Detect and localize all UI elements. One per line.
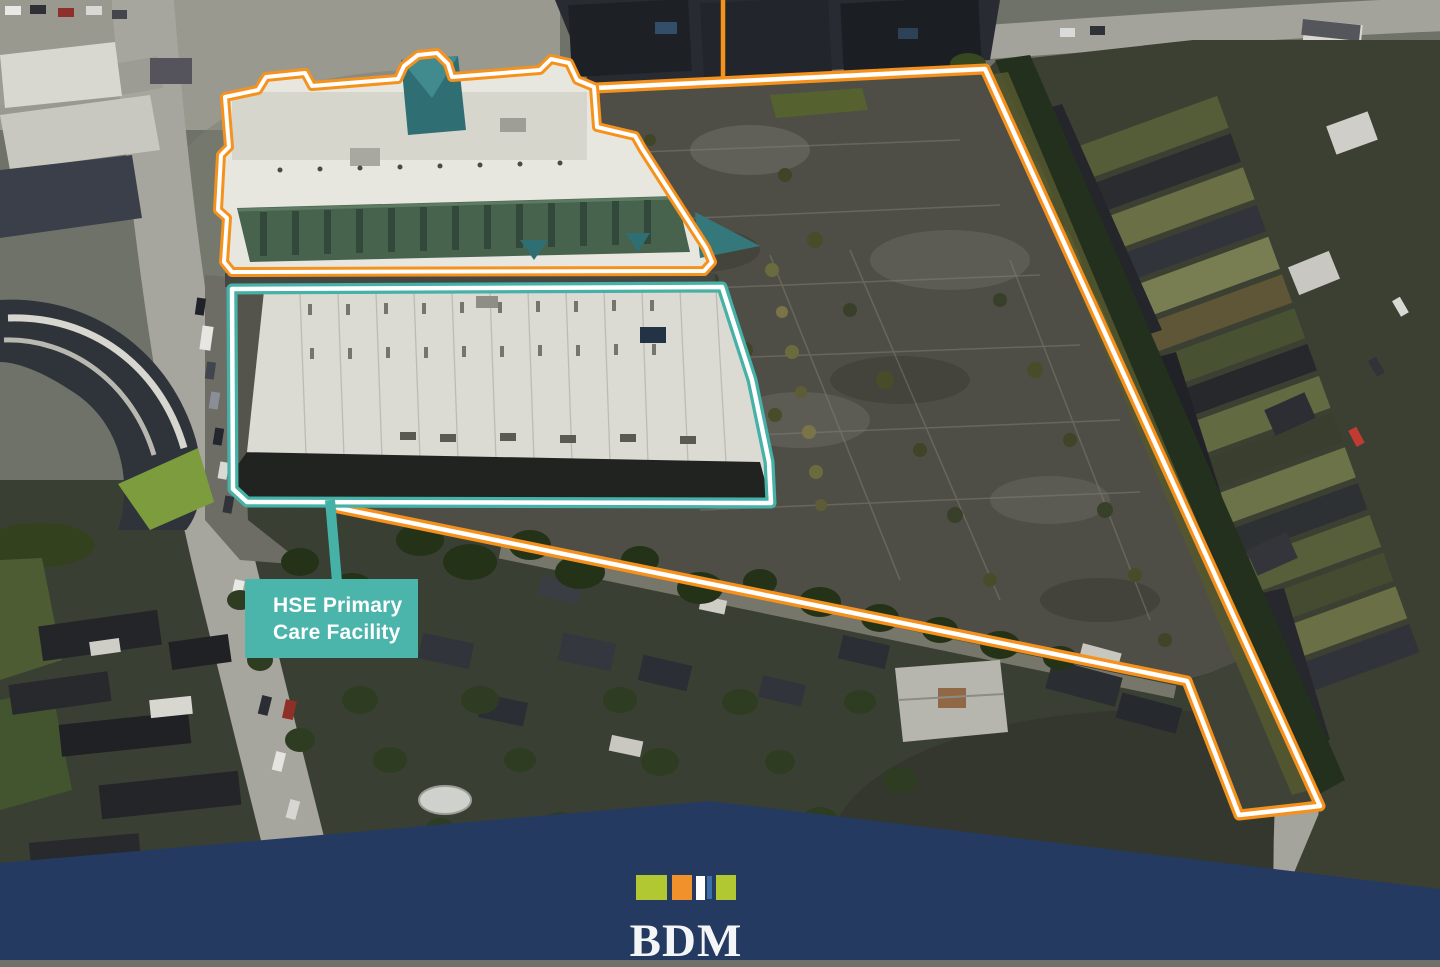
hse-label-line1: HSE Primary [273, 592, 418, 619]
lime-square-icon-2 [716, 875, 736, 900]
orange-square-icon [672, 875, 692, 900]
aerial-photo [0, 0, 1440, 960]
bdm-logo-text: BDM [570, 918, 802, 965]
label-leader-line [330, 500, 337, 582]
bdm-logo-squares [636, 875, 736, 900]
aerial-photo-svg [0, 0, 1440, 960]
lime-square-icon [636, 875, 667, 900]
hse-label: HSE Primary Care Facility [245, 579, 418, 658]
white-square-icon [696, 876, 705, 900]
hse-label-line2: Care Facility [273, 619, 418, 646]
blue-square-icon [707, 876, 712, 899]
warehouse-building [232, 287, 771, 503]
